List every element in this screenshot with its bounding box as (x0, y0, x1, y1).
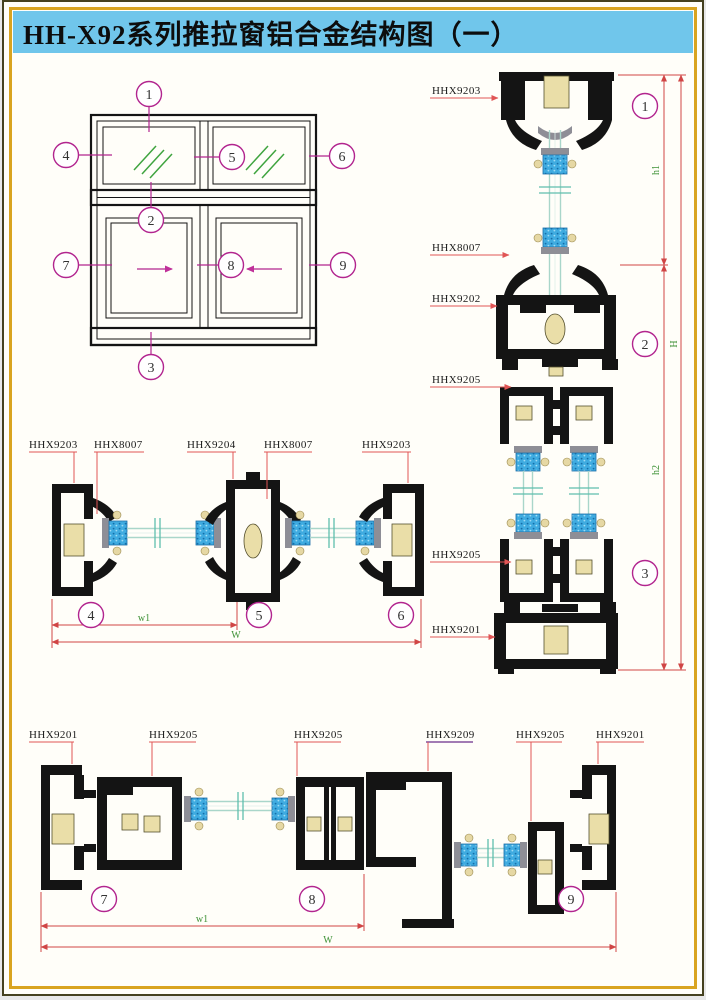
callout-7: 7 (101, 893, 108, 908)
mid-frame-profile (366, 772, 454, 928)
callout-1: 1 (146, 88, 153, 103)
profile-label: HHX9205 (516, 729, 565, 741)
callout-7: 7 (63, 259, 70, 274)
dim-h2: h2 (651, 465, 662, 475)
drawing-canvas: 1 2 3 4 5 6 7 8 9 (4, 2, 704, 996)
profile-label: HHX9204 (187, 439, 236, 451)
profile-label: HHX9205 (149, 729, 198, 741)
callout-8: 8 (228, 259, 235, 274)
top-horizontal-section: HHX9203 HHX8007 HHX9204 HHX8007 HHX9203 … (29, 439, 424, 648)
upper-glass (534, 130, 576, 302)
callout-6: 6 (398, 609, 405, 624)
callout-3: 3 (148, 361, 155, 376)
right-frame-profile (570, 765, 616, 890)
bottom-section-callouts: 7 8 9 (92, 887, 584, 912)
fixed-pane-left (103, 127, 195, 184)
callout-8: 8 (309, 893, 316, 908)
head-frame-profile (499, 72, 614, 150)
profile-label: HHX9209 (426, 729, 475, 741)
bottom-section-labels: HHX9201 HHX9205 HHX9205 HHX9209 HHX9205 … (29, 729, 645, 821)
callout-4: 4 (88, 609, 95, 624)
dim-W: W (323, 935, 333, 946)
profile-label: HHX9201 (432, 624, 481, 636)
profile-label: HHX9203 (362, 439, 411, 451)
glass-hatch-left (134, 146, 172, 178)
top-glass-left (102, 511, 221, 555)
callout-2: 2 (148, 214, 155, 229)
profile-label: HHX9205 (432, 549, 481, 561)
callout-3: 3 (642, 567, 649, 582)
profile-label: HHX8007 (264, 439, 313, 451)
profile-label: HHX9201 (29, 729, 78, 741)
bottom-glass-left (184, 788, 295, 830)
window-elevation: 1 2 3 4 5 6 7 8 9 (54, 82, 356, 380)
profile-label: HHX9202 (432, 293, 481, 305)
top-section-dimensions: w1 W (52, 599, 421, 648)
callout-5: 5 (229, 151, 236, 166)
left-frame-profile (41, 765, 96, 890)
elevation-leaders (79, 107, 330, 354)
sash-bottom-profiles (500, 539, 613, 602)
dim-h1: h1 (651, 165, 662, 175)
profile-label: HHX9205 (294, 729, 343, 741)
profile-label: HHX9205 (432, 374, 481, 386)
callout-2: 2 (642, 338, 649, 353)
callout-9: 9 (568, 893, 575, 908)
title-bar: HH-X92系列推拉窗铝合金结构图（一） (13, 11, 693, 53)
profile-label: HHX9201 (596, 729, 645, 741)
vertical-section-labels: HHX9203 HHX8007 HHX9202 HHX9205 HHX9205 … (430, 85, 511, 637)
sill-profile (494, 602, 618, 674)
callout-1: 1 (642, 100, 649, 115)
dim-w1: w1 (196, 914, 208, 925)
bottom-horizontal-section: HHX9201 HHX9205 HHX9205 HHX9209 HHX9205 … (29, 729, 645, 952)
dim-H: H (669, 340, 680, 347)
glazing-block (543, 228, 567, 247)
vertical-section: HHX9203 HHX8007 HHX9202 HHX9205 HHX9205 … (430, 72, 686, 674)
left-sash-profile (97, 777, 182, 870)
profile-label: HHX9203 (432, 85, 481, 97)
bottom-glass-right (454, 834, 527, 876)
glass-hatch-right (246, 146, 284, 178)
profile-label: HHX9203 (29, 439, 78, 451)
glazing-block (543, 155, 567, 174)
callout-4: 4 (63, 149, 70, 164)
elevation-inner-frame (97, 121, 310, 339)
sash-glass (507, 446, 605, 539)
profile-label: HHX8007 (432, 242, 481, 254)
profile-label: HHX8007 (94, 439, 143, 451)
drawing-sheet: HH-X92系列推拉窗铝合金结构图（一） (2, 0, 704, 996)
callout-5: 5 (256, 609, 263, 624)
sash-top-profiles (500, 387, 613, 444)
transom-profile (496, 265, 618, 376)
callout-9: 9 (340, 259, 347, 274)
dim-w1: w1 (138, 613, 150, 624)
sheet-title: HH-X92系列推拉窗铝合金结构图（一） (13, 13, 519, 52)
dim-W: W (231, 630, 241, 641)
elevation-sill-band (91, 328, 316, 345)
elevation-outer-frame (91, 115, 316, 345)
callout-6: 6 (339, 150, 346, 165)
interlock-profile (296, 777, 364, 870)
